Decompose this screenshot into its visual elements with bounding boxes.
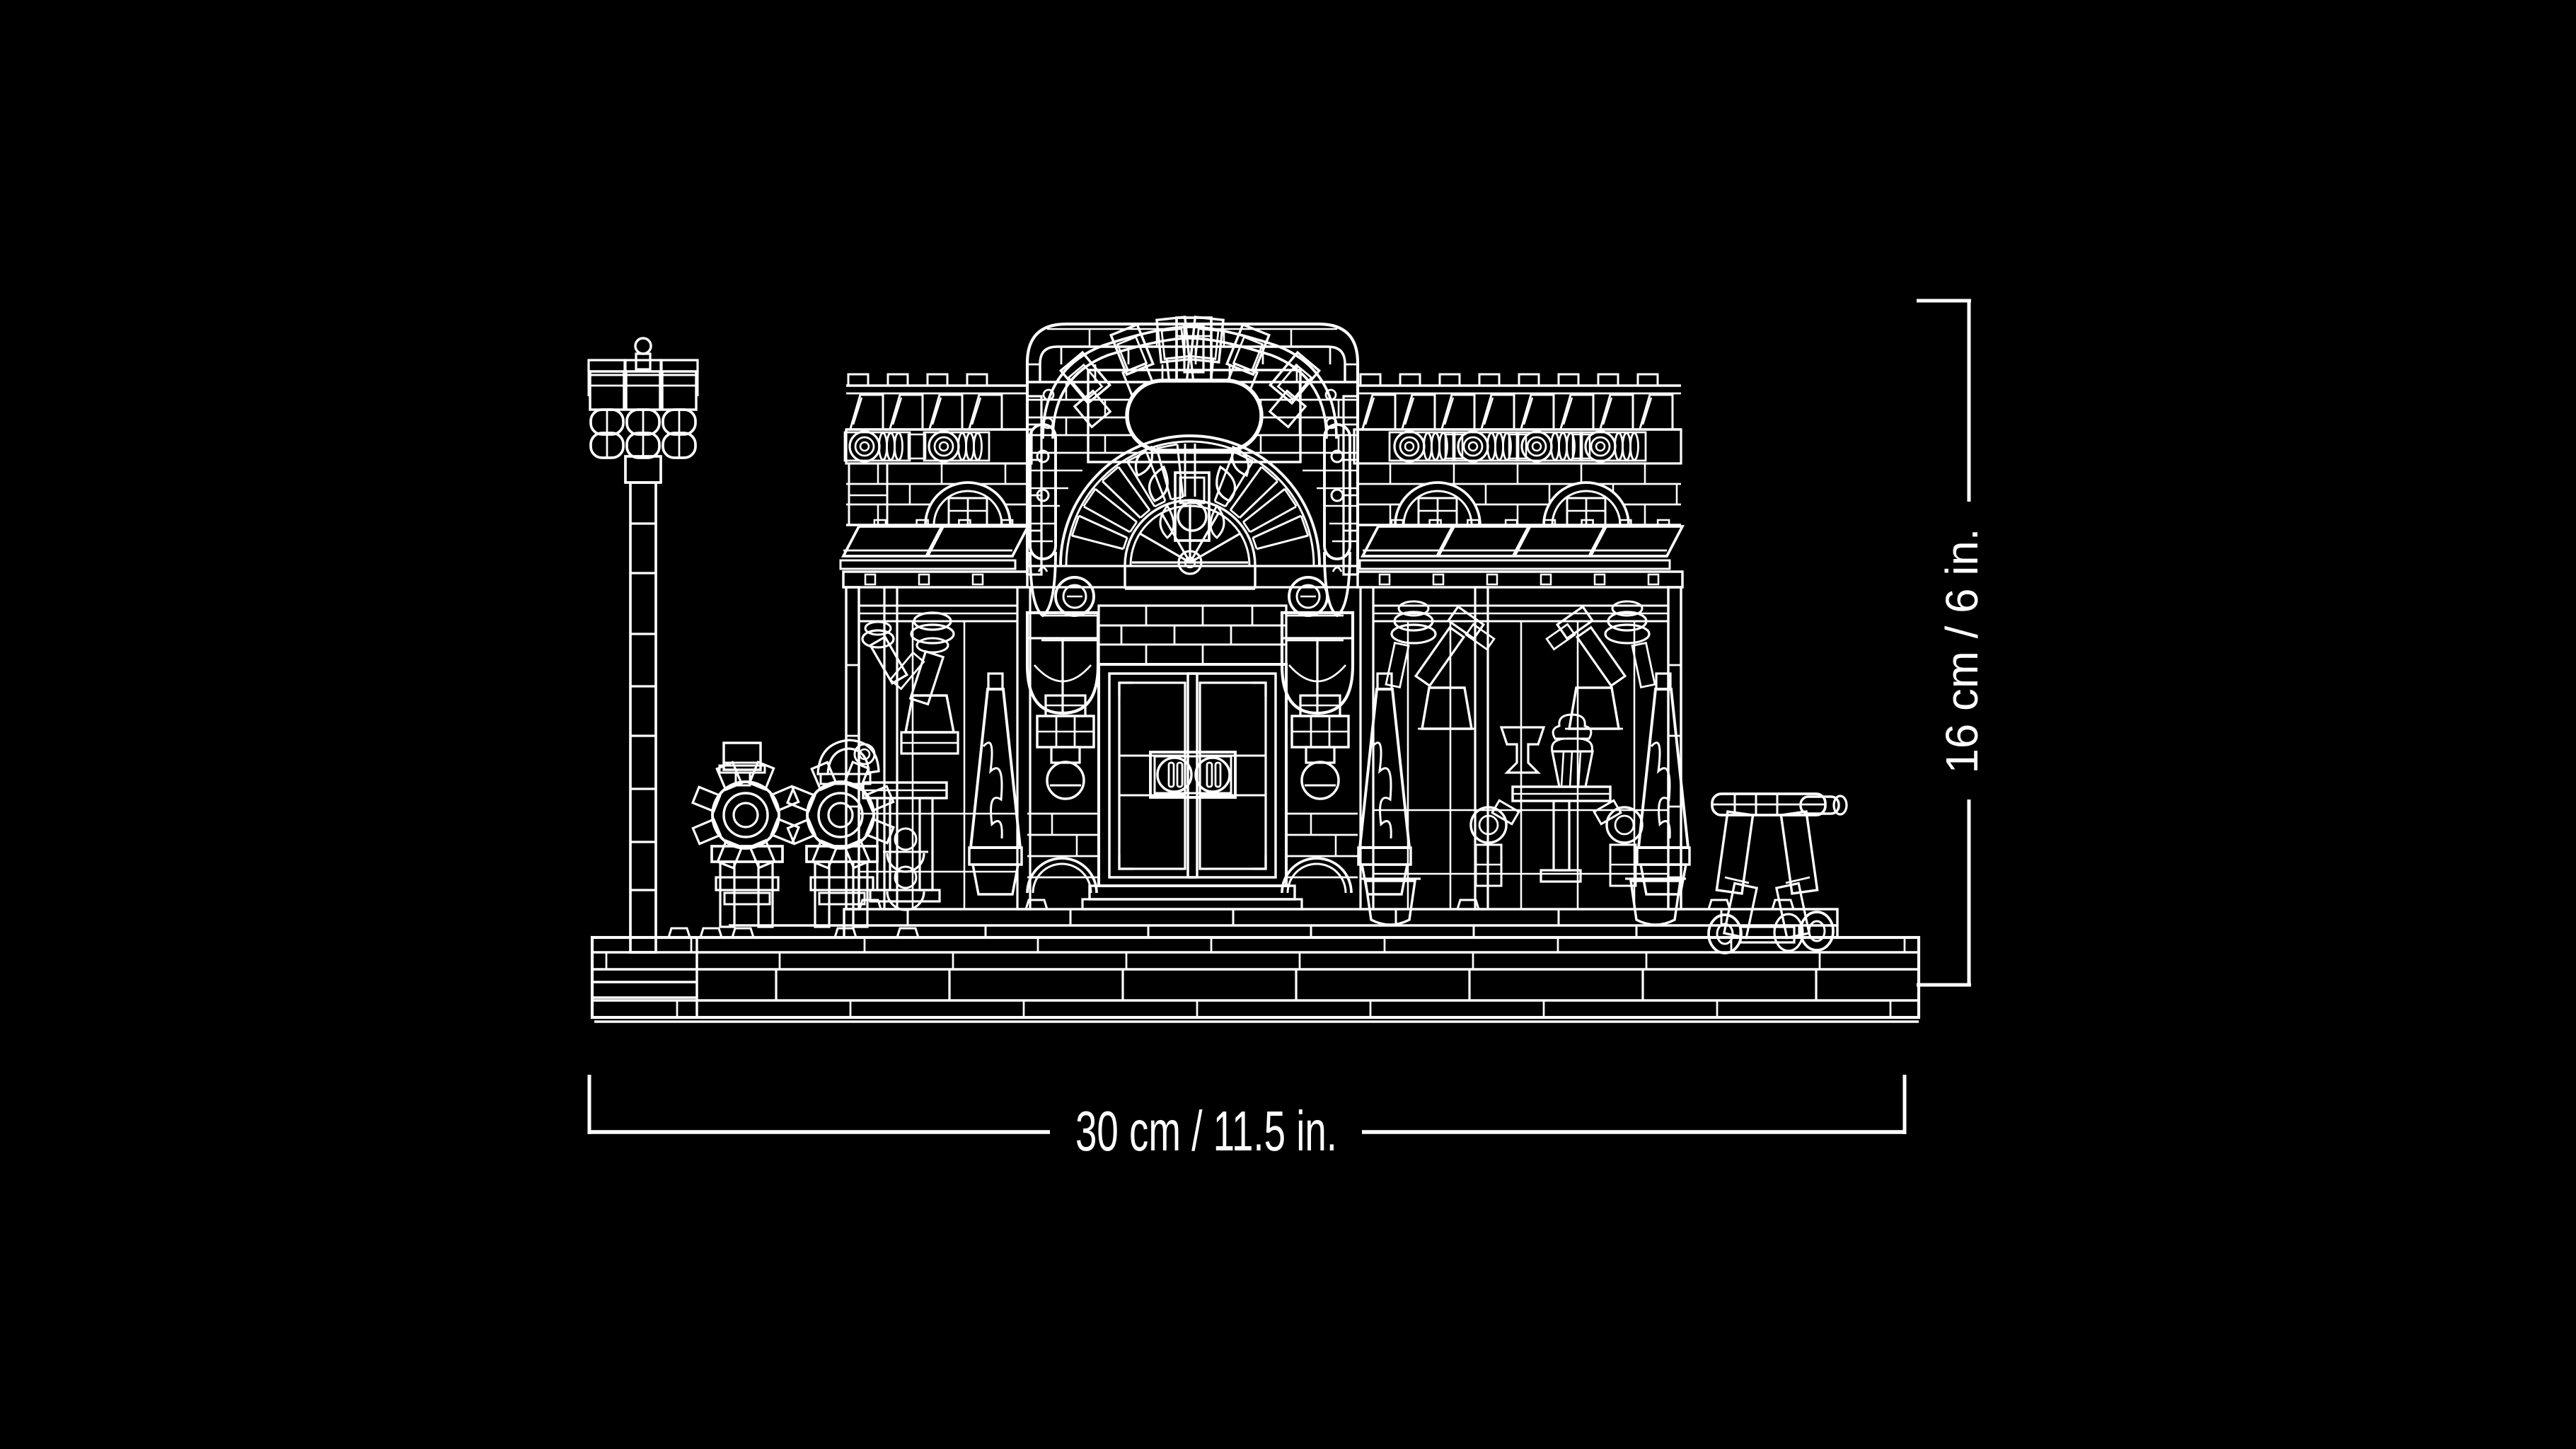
svg-text:16 cm / 6 in.: 16 cm / 6 in. xyxy=(1936,529,1987,774)
svg-text:30 cm / 11.5 in.: 30 cm / 11.5 in. xyxy=(1075,1099,1337,1162)
